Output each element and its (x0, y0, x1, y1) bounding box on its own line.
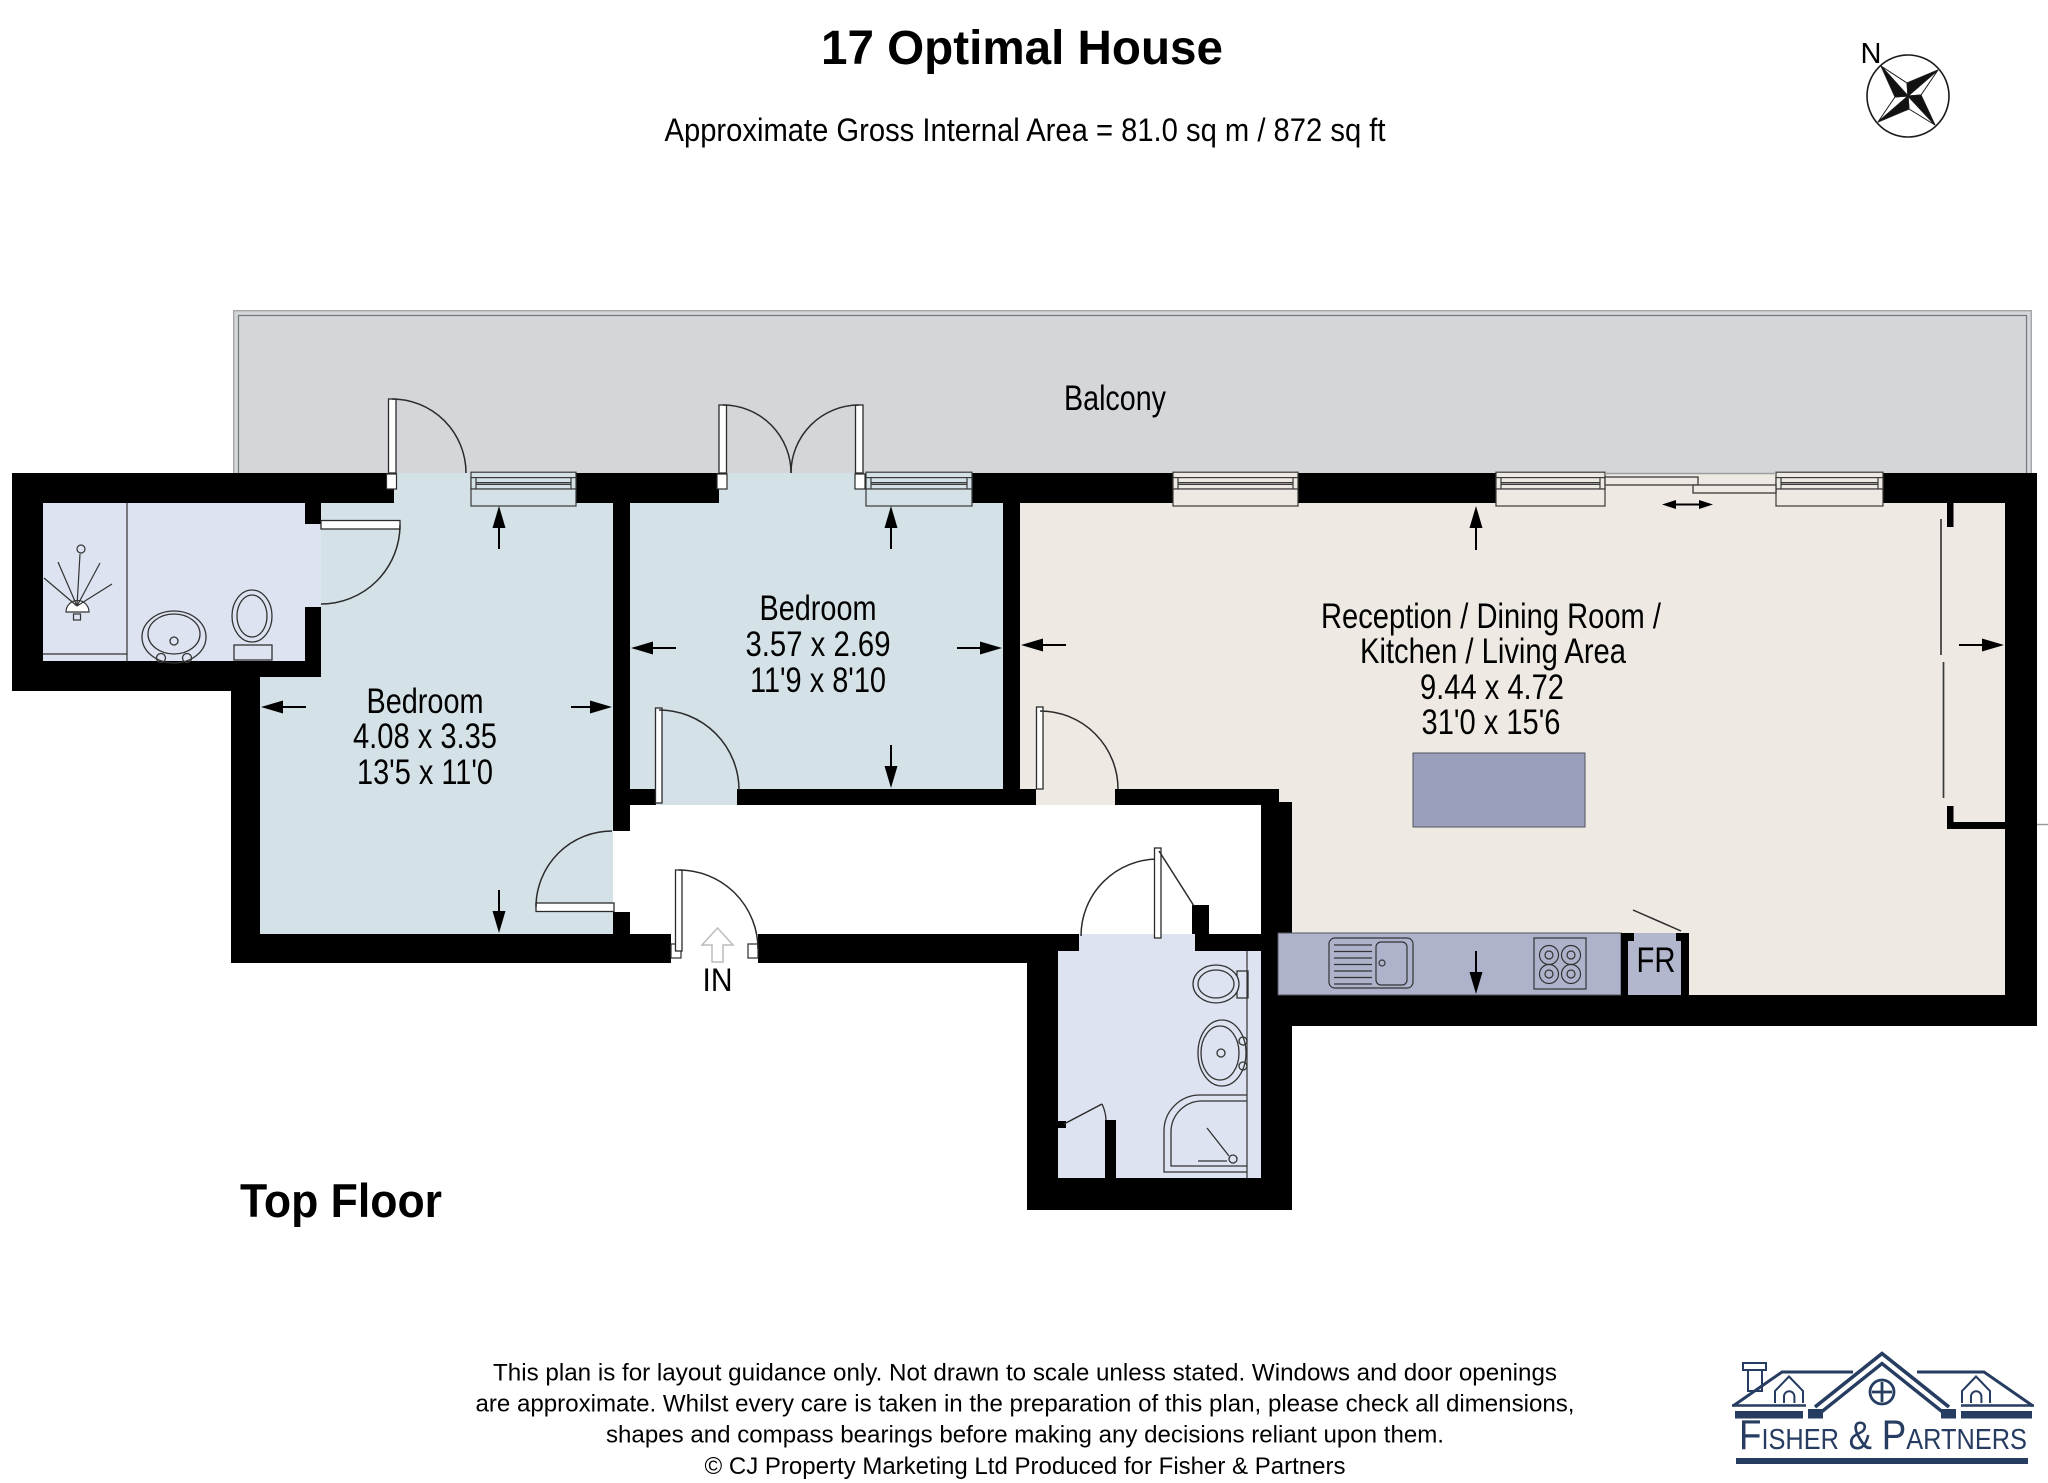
svg-text:11'9 x 8'10: 11'9 x 8'10 (750, 660, 886, 700)
svg-text:3.57 x 2.69: 3.57 x 2.69 (746, 624, 891, 664)
svg-text:13'5 x 11'0: 13'5 x 11'0 (357, 752, 493, 792)
svg-text:Bedroom: Bedroom (760, 588, 877, 628)
svg-text:Balcony: Balcony (1064, 379, 1166, 418)
svg-text:Top Floor: Top Floor (240, 1174, 442, 1227)
svg-text:© CJ Property Marketing Ltd Pr: © CJ Property Marketing Ltd Produced for… (705, 1453, 1346, 1480)
svg-text:4.08 x 3.35: 4.08 x 3.35 (353, 716, 497, 756)
svg-text:Approximate Gross Internal Are: Approximate Gross Internal Area = 81.0 s… (665, 112, 1386, 148)
svg-text:17 Optimal House: 17 Optimal House (821, 22, 1223, 75)
svg-text:N: N (1861, 38, 1882, 70)
svg-text:shapes and compass bearings be: shapes and compass bearings before makin… (606, 1422, 1444, 1449)
svg-text:Kitchen / Living Area: Kitchen / Living Area (1360, 631, 1626, 671)
svg-text:IN: IN (703, 962, 733, 998)
svg-text:FR: FR (1637, 941, 1676, 980)
svg-text:This plan is for layout guidan: This plan is for layout guidance only. N… (493, 1360, 1557, 1387)
svg-text:Reception / Dining Room /: Reception / Dining Room / (1321, 596, 1661, 636)
svg-text:are approximate. Whilst every: are approximate. Whilst every care is ta… (476, 1391, 1575, 1418)
svg-text:Bedroom: Bedroom (367, 681, 484, 721)
svg-text:31'0 x 15'6: 31'0 x 15'6 (1422, 702, 1561, 742)
svg-text:9.44 x 4.72: 9.44 x 4.72 (1420, 667, 1564, 707)
